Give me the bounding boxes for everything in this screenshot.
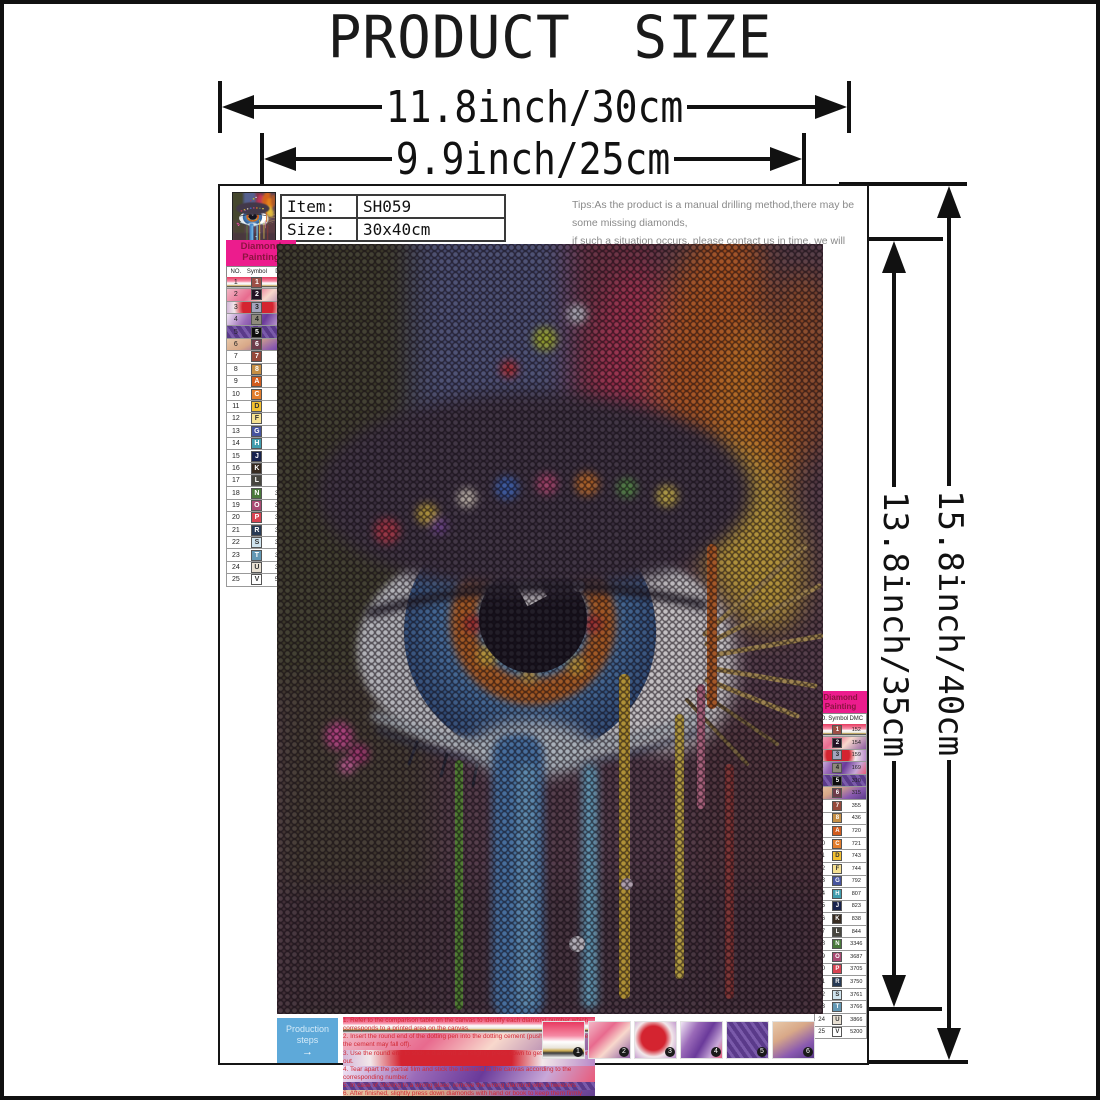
symbol-swatch: S xyxy=(832,990,842,1000)
symbol-swatch: D xyxy=(832,851,842,861)
symbol-swatch: C xyxy=(832,839,842,849)
symbol-swatch: G xyxy=(832,876,842,886)
symbol-swatch: L xyxy=(832,927,842,937)
symbol-swatch: V xyxy=(251,574,262,585)
symbol-swatch: H xyxy=(832,889,842,899)
symbol-swatch: 2 xyxy=(251,289,262,300)
width-outer-label: 11.8inch/30cm xyxy=(382,82,687,133)
symbol-swatch: P xyxy=(832,964,842,974)
arrow-left-icon xyxy=(222,95,254,119)
symbol-swatch: C xyxy=(251,389,262,400)
symbol-swatch: 6 xyxy=(251,339,262,350)
eye-artwork xyxy=(277,244,823,1014)
item-info-table: Item: SH059 Size: 30x40cm xyxy=(280,194,506,242)
symbol-swatch: K xyxy=(832,914,842,924)
instruction-line: 5. In case of sticking to a wrong place,… xyxy=(343,1082,595,1090)
dimension-end-bar xyxy=(802,133,806,185)
dimension-line xyxy=(674,157,770,161)
step-number-badge: 3 xyxy=(665,1047,675,1057)
symbol-swatch: 1 xyxy=(832,725,842,735)
width-inner-label: 9.9inch/25cm xyxy=(392,134,675,185)
height-dimension-outer: 15.8inch/40cm xyxy=(926,186,972,1060)
width-dimension-inner: 9.9inch/25cm xyxy=(260,133,806,185)
step-number-badge: 4 xyxy=(711,1047,721,1057)
symbol-swatch: V xyxy=(832,1027,842,1037)
symbol-swatch: S xyxy=(251,537,262,548)
width-dimension-outer: 11.8inch/30cm xyxy=(218,81,851,133)
symbol-swatch: 2 xyxy=(832,738,842,748)
symbol-swatch: T xyxy=(251,550,262,561)
symbol-swatch: U xyxy=(251,562,262,573)
dimension-cap xyxy=(868,1060,968,1064)
arrow-left-icon xyxy=(264,147,296,171)
step-number-badge: 6 xyxy=(803,1047,813,1057)
dimension-line xyxy=(947,760,951,1028)
arrow-down-icon xyxy=(937,1028,961,1060)
symbol-swatch: G xyxy=(251,426,262,437)
arrow-up-icon xyxy=(882,241,906,273)
artwork-thumbnail xyxy=(232,192,276,242)
symbol-swatch: 7 xyxy=(251,351,262,362)
symbol-swatch: L xyxy=(251,475,262,486)
size-row: Size: 30x40cm xyxy=(282,217,504,240)
symbol-swatch: D xyxy=(251,401,262,412)
symbol-swatch: 5 xyxy=(251,327,262,338)
step-photo: 1 xyxy=(542,1021,585,1059)
symbol-swatch: 8 xyxy=(251,364,262,375)
item-value: SH059 xyxy=(358,196,504,217)
symbol-swatch: 3 xyxy=(251,302,262,313)
legend-row: 24 U 3866 xyxy=(814,1014,867,1027)
symbol-swatch: A xyxy=(832,826,842,836)
page-title: PRODUCT SIZE xyxy=(4,4,1096,72)
dimension-line xyxy=(254,105,382,109)
symbol-swatch: 5 xyxy=(832,776,842,786)
dimension-line xyxy=(892,273,896,487)
symbol-swatch: P xyxy=(251,512,262,523)
symbol-swatch: H xyxy=(251,438,262,449)
step-photo: 2 xyxy=(588,1021,631,1059)
symbol-swatch: 6 xyxy=(832,788,842,798)
item-label: Item: xyxy=(282,196,358,217)
step-number-badge: 5 xyxy=(757,1047,767,1057)
size-value: 30x40cm xyxy=(358,219,504,240)
step-photos: 1 2 3 4 5 6 xyxy=(542,1021,815,1059)
dimension-end-bar xyxy=(847,81,851,133)
canvas-sheet: Item: SH059 Size: 30x40cm Tips:As the pr… xyxy=(218,184,869,1065)
height-outer-label: 15.8inch/40cm xyxy=(931,486,967,760)
arrow-right-icon xyxy=(815,95,847,119)
tips-line: Tips:As the product is a manual drilling… xyxy=(572,197,870,233)
step-photo: 6 xyxy=(772,1021,815,1059)
step-photo: 4 xyxy=(680,1021,723,1059)
symbol-swatch: J xyxy=(832,901,842,911)
arrow-up-icon xyxy=(937,186,961,218)
symbol-swatch: 8 xyxy=(832,813,842,823)
symbol-swatch: A xyxy=(251,376,262,387)
dimension-line xyxy=(892,761,896,975)
legend-row: 25 V 5200 xyxy=(814,1027,867,1040)
dimension-line xyxy=(687,105,815,109)
arrow-right-icon: → xyxy=(277,1047,338,1058)
symbol-swatch: 3 xyxy=(832,750,842,760)
symbol-swatch: 7 xyxy=(832,801,842,811)
symbol-swatch: R xyxy=(251,525,262,536)
dimension-line xyxy=(296,157,392,161)
height-inner-label: 13.8inch/35cm xyxy=(876,487,912,761)
symbol-swatch: 4 xyxy=(832,763,842,773)
symbol-swatch: N xyxy=(832,939,842,949)
dimension-line xyxy=(947,218,951,486)
size-label: Size: xyxy=(282,219,358,240)
instruction-line: 4. Tear apart the partial film and stick… xyxy=(343,1066,595,1082)
diamond-dot-grid xyxy=(277,244,823,1014)
product-size-infographic: PRODUCT SIZE 11.8inch/30cm 9.9inch/25cm … xyxy=(0,0,1100,1100)
instruction-line: 6. After finished, slightly press down d… xyxy=(343,1090,595,1100)
symbol-swatch: O xyxy=(832,952,842,962)
item-row: Item: SH059 xyxy=(282,196,504,217)
symbol-swatch: R xyxy=(832,977,842,987)
symbol-swatch: T xyxy=(832,1002,842,1012)
symbol-swatch: 1 xyxy=(251,277,262,288)
symbol-swatch: N xyxy=(251,488,262,499)
step-photo: 5 xyxy=(726,1021,769,1059)
symbol-swatch: 4 xyxy=(251,314,262,325)
step-number-badge: 1 xyxy=(573,1047,583,1057)
symbol-swatch: J xyxy=(251,451,262,462)
production-steps-box: Production steps → xyxy=(277,1018,338,1063)
arrow-right-icon xyxy=(770,147,802,171)
symbol-swatch: O xyxy=(251,500,262,511)
step-number-badge: 2 xyxy=(619,1047,629,1057)
symbol-swatch: F xyxy=(832,864,842,874)
symbol-swatch: U xyxy=(832,1015,842,1025)
step-photo: 3 xyxy=(634,1021,677,1059)
arrow-down-icon xyxy=(882,975,906,1007)
symbol-swatch: K xyxy=(251,463,262,474)
symbol-swatch: F xyxy=(251,413,262,424)
height-dimension-inner: 13.8inch/35cm xyxy=(871,241,917,1007)
